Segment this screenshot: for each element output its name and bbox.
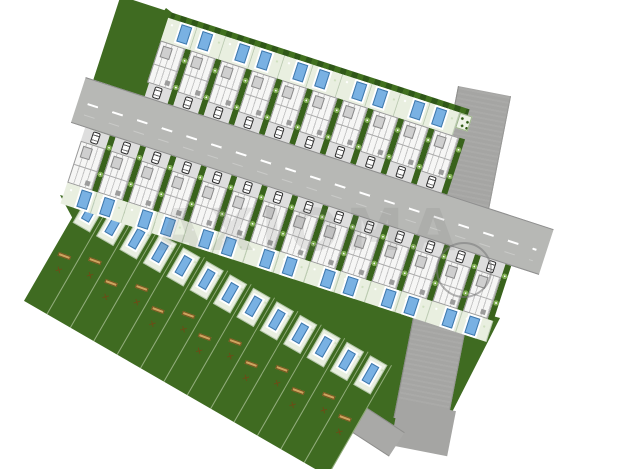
site-plan-canvas: ✕✕✕✕✕✕✕✕✕✕✕✕✕ AXIOMA	[0, 0, 640, 469]
x-mark-icon: ✕	[317, 406, 328, 418]
car-icon	[181, 161, 192, 175]
log-icon	[151, 305, 165, 313]
swimming-pool	[76, 189, 92, 210]
x-mark-icon: ✕	[240, 373, 251, 385]
swimming-pool	[197, 31, 213, 52]
roundabout-circle	[436, 242, 492, 298]
swimming-pool	[291, 322, 309, 344]
log-icon	[198, 332, 212, 340]
car-icon	[90, 131, 101, 145]
swimming-pool	[293, 62, 309, 83]
x-mark-icon: ✕	[146, 319, 157, 331]
log-icon	[229, 338, 243, 346]
log-icon	[245, 359, 259, 367]
log-icon	[291, 386, 305, 394]
swimming-pool	[343, 276, 359, 297]
x-mark-icon: ✕	[270, 379, 281, 391]
car-icon	[333, 210, 344, 224]
swimming-pool	[198, 268, 216, 290]
swimming-pool	[314, 69, 330, 90]
car-icon	[152, 86, 163, 100]
car-icon	[182, 96, 193, 110]
x-mark-icon: ✕	[224, 352, 235, 364]
x-mark-icon: ✕	[286, 400, 297, 412]
swimming-pool	[268, 309, 286, 331]
swimming-pool	[282, 256, 298, 277]
log-icon	[88, 257, 102, 265]
swimming-pool	[256, 50, 272, 71]
swimming-pool	[464, 316, 480, 337]
swimming-pool	[221, 282, 239, 304]
swimming-pool	[351, 81, 367, 102]
car-icon	[364, 220, 375, 234]
east-road-south-extension	[390, 400, 456, 456]
car-icon	[120, 141, 131, 155]
swimming-pool	[234, 43, 250, 64]
swimming-pool	[174, 255, 192, 277]
car-icon	[304, 136, 315, 150]
car-icon	[334, 145, 345, 159]
swimming-pool	[409, 100, 425, 121]
swimming-pool	[245, 295, 263, 317]
car-icon	[272, 191, 283, 205]
car-icon	[273, 126, 284, 140]
car-icon	[213, 106, 224, 120]
x-mark-icon: ✕	[130, 298, 141, 310]
swimming-pool	[431, 107, 447, 128]
swimming-pool	[160, 217, 176, 238]
swimming-pool	[381, 288, 397, 309]
swimming-pool	[176, 24, 192, 45]
swimming-pool	[320, 269, 336, 290]
log-icon	[338, 413, 352, 421]
log-icon	[275, 365, 289, 373]
log-icon	[182, 311, 196, 319]
car-icon	[211, 171, 222, 185]
x-mark-icon: ✕	[99, 292, 110, 304]
car-icon	[424, 240, 435, 254]
car-icon	[242, 181, 253, 195]
x-mark-icon: ✕	[83, 271, 94, 283]
log-icon	[135, 284, 149, 292]
swimming-pool	[151, 241, 169, 263]
swimming-pool	[128, 228, 146, 250]
swimming-pool	[372, 88, 388, 109]
swimming-pool	[99, 197, 115, 218]
swimming-pool	[221, 236, 237, 257]
swimming-pool	[198, 229, 214, 250]
car-icon	[365, 155, 376, 169]
swimming-pool	[362, 363, 380, 385]
car-icon	[303, 200, 314, 214]
swimming-pool	[137, 209, 153, 230]
swimming-pool	[338, 349, 356, 371]
log-icon	[104, 278, 118, 286]
car-icon	[394, 230, 405, 244]
car-icon	[426, 175, 437, 189]
swimming-pool	[259, 249, 275, 270]
swimming-pool	[441, 308, 457, 329]
car-icon	[243, 116, 254, 130]
swimming-pool	[403, 296, 419, 317]
log-icon	[322, 392, 336, 400]
car-icon	[151, 151, 162, 165]
x-mark-icon: ✕	[177, 325, 188, 337]
x-mark-icon: ✕	[53, 265, 64, 277]
log-icon	[58, 251, 72, 259]
x-mark-icon: ✕	[193, 346, 204, 358]
x-mark-icon: ✕	[333, 427, 344, 439]
car-icon	[395, 165, 406, 179]
swimming-pool	[315, 336, 333, 358]
